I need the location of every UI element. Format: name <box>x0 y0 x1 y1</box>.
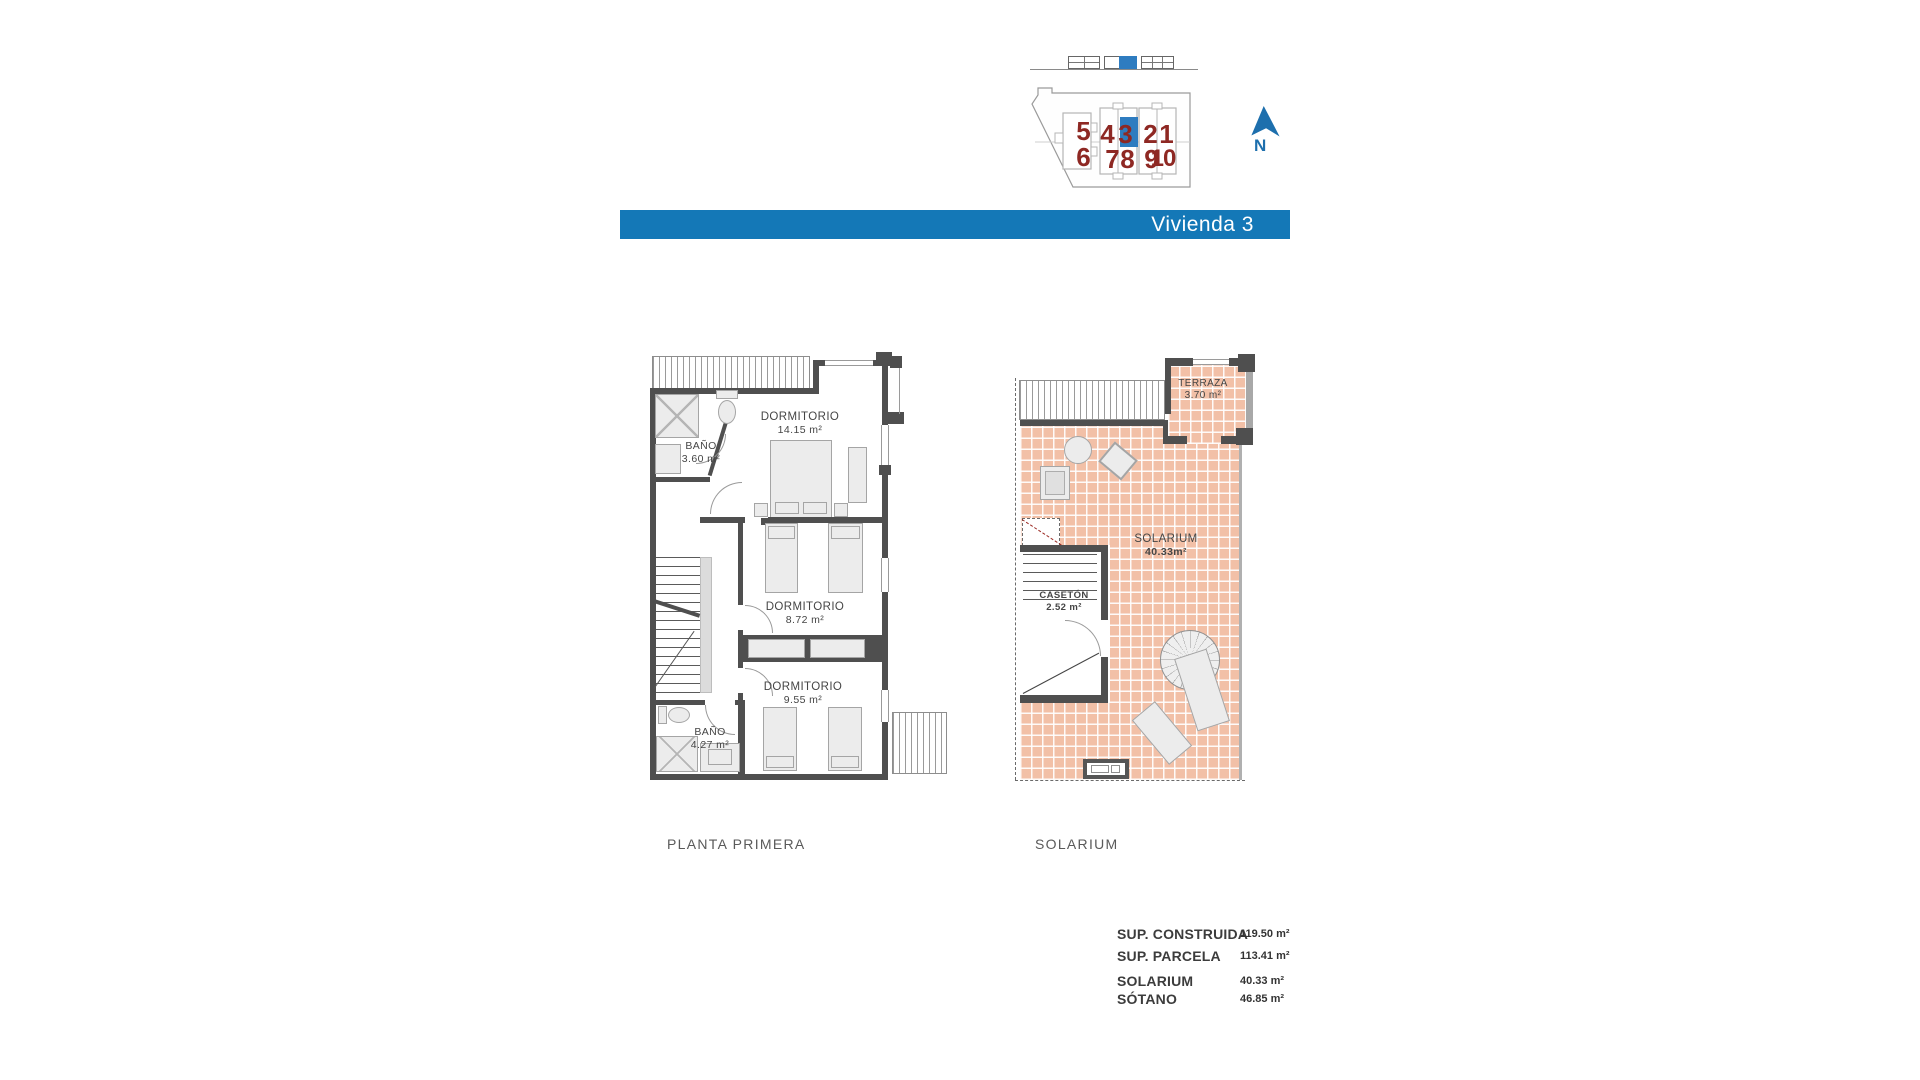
summary-value: 113.41 m² <box>1240 950 1290 962</box>
wardrobe <box>810 639 865 658</box>
pillow <box>775 502 799 514</box>
north-arrow-head <box>1248 105 1279 140</box>
summary-row: SOLARIUM 40.33 m² <box>1117 973 1317 991</box>
window <box>825 360 873 366</box>
wardrobe <box>848 447 867 503</box>
wardrobe <box>748 639 805 658</box>
room-name: TERRAZA <box>1167 378 1239 390</box>
pillow <box>831 756 859 768</box>
summary-row: SUP. PARCELA 113.41 m² <box>1117 948 1317 966</box>
wall <box>650 700 705 705</box>
room-area: 4.27 m² <box>678 739 742 752</box>
vent-grille <box>1111 765 1120 773</box>
unit-title-banner: Vivienda 3 <box>620 210 1290 239</box>
room-name: BAÑO <box>678 726 742 739</box>
summary-row: SÓTANO 46.85 m² <box>1117 991 1317 1009</box>
plot-number-6: 6 <box>1070 142 1096 173</box>
room-name: DORMITORIO <box>755 600 855 614</box>
vent-grille <box>1091 765 1109 773</box>
staircase <box>656 557 700 693</box>
summary-value: 40.33 m² <box>1240 975 1284 987</box>
pergola-hatch <box>892 712 947 774</box>
room-name: BAÑO <box>672 440 730 453</box>
pergola-hatch <box>1019 380 1165 420</box>
balcony-post <box>888 412 904 424</box>
roof-hatch <box>652 356 810 389</box>
armchair <box>1040 466 1070 500</box>
elevation-block <box>1104 56 1137 69</box>
window <box>1193 359 1229 365</box>
elevation-baseline <box>1030 69 1198 70</box>
room-area: 3.70 m² <box>1167 390 1239 402</box>
wall <box>1020 545 1108 552</box>
toilet-tank <box>716 390 738 399</box>
room-area: 14.15 m² <box>750 424 850 437</box>
window-jamb <box>1246 372 1253 430</box>
wall-post <box>879 465 891 475</box>
summary-label: SUP. PARCELA <box>1117 948 1221 964</box>
toilet-bowl <box>718 400 736 424</box>
elevation-highlight <box>1119 56 1137 69</box>
plot-number-8: 8 <box>1114 144 1140 175</box>
armchair-cushion <box>1045 471 1065 495</box>
vent-box <box>1083 759 1129 779</box>
window <box>881 558 889 592</box>
plot-number-10: 10 <box>1150 145 1176 173</box>
window <box>881 425 889 465</box>
wall <box>813 360 819 394</box>
floor-plan-solarium: TERRAZA 3.70 m² SOLARIUM 40.33m² CASETÓN… <box>1015 352 1271 788</box>
summary-label: SÓTANO <box>1117 991 1177 1007</box>
room-area: 40.33m² <box>1118 546 1214 559</box>
shower <box>655 394 699 438</box>
pillow <box>768 526 795 539</box>
parapet <box>1239 426 1242 780</box>
room-name: DORMITORIO <box>750 410 850 424</box>
room-label-dormitorio-1: DORMITORIO 14.15 m² <box>750 410 850 437</box>
room-label-caseton: CASETÓN 2.52 m² <box>1025 590 1103 613</box>
wall <box>1020 695 1108 703</box>
nightstand <box>834 503 848 517</box>
nightstand <box>754 503 768 517</box>
elevation-block <box>1141 56 1174 69</box>
pillow <box>803 502 827 514</box>
room-label-terraza: TERRAZA 3.70 m² <box>1167 378 1239 402</box>
elevation-strip <box>1020 45 1200 75</box>
wall <box>1020 420 1168 426</box>
elevation-block <box>1068 56 1100 69</box>
room-label-dormitorio-2: DORMITORIO 8.72 m² <box>755 600 855 627</box>
wall <box>650 477 710 482</box>
door-arc <box>710 482 742 514</box>
room-label-bano-1: BAÑO 3.60 m² <box>672 440 730 466</box>
plot-boundary <box>1015 780 1245 781</box>
north-label: N <box>1254 136 1266 156</box>
room-area: 9.55 m² <box>753 694 853 707</box>
stair-wall <box>700 557 712 693</box>
room-name: CASETÓN <box>1025 590 1103 602</box>
plan-caption-planta-primera: PLANTA PRIMERA <box>667 836 806 852</box>
room-label-dormitorio-3: DORMITORIO 9.55 m² <box>753 680 853 707</box>
corner-post <box>1238 354 1255 372</box>
room-area: 2.52 m² <box>1025 602 1103 614</box>
room-name: DORMITORIO <box>753 680 853 694</box>
plot-boundary <box>1015 378 1016 780</box>
summary-label: SUP. CONSTRUIDA <box>1117 926 1248 942</box>
floor-plan-planta-primera: BAÑO 3.60 m² DORMITORIO 14.15 m² <box>650 352 950 788</box>
room-name: SOLARIUM <box>1118 532 1214 546</box>
toilet-bowl <box>668 707 690 723</box>
summary-row: SUP. CONSTRUIDA 119.50 m² <box>1117 926 1317 944</box>
room-label-bano-2: BAÑO 4.27 m² <box>678 726 742 752</box>
summary-value: 46.85 m² <box>1240 993 1284 1005</box>
wall <box>738 523 743 605</box>
north-arrow-icon: N <box>1248 104 1282 156</box>
plan-caption-solarium: SOLARIUM <box>1035 836 1119 852</box>
balcony-post <box>890 356 902 368</box>
brochure-page: 5 6 4 3 2 1 7 8 9 10 N Vivienda 3 <box>0 0 1920 1080</box>
window <box>881 690 889 722</box>
room-label-solarium: SOLARIUM 40.33m² <box>1118 532 1214 559</box>
room-area: 3.60 m² <box>672 453 730 466</box>
balcony-rail <box>899 368 900 414</box>
pillow <box>766 756 794 768</box>
room-area: 8.72 m² <box>755 614 855 627</box>
toilet-tank <box>658 706 667 724</box>
summary-label: SOLARIUM <box>1117 973 1193 989</box>
round-table <box>1064 436 1092 464</box>
summary-value: 119.50 m² <box>1240 928 1290 940</box>
wall <box>1221 436 1239 444</box>
wall <box>1165 436 1187 444</box>
pillow <box>831 526 860 539</box>
wall <box>650 774 888 780</box>
wall <box>1165 358 1193 366</box>
